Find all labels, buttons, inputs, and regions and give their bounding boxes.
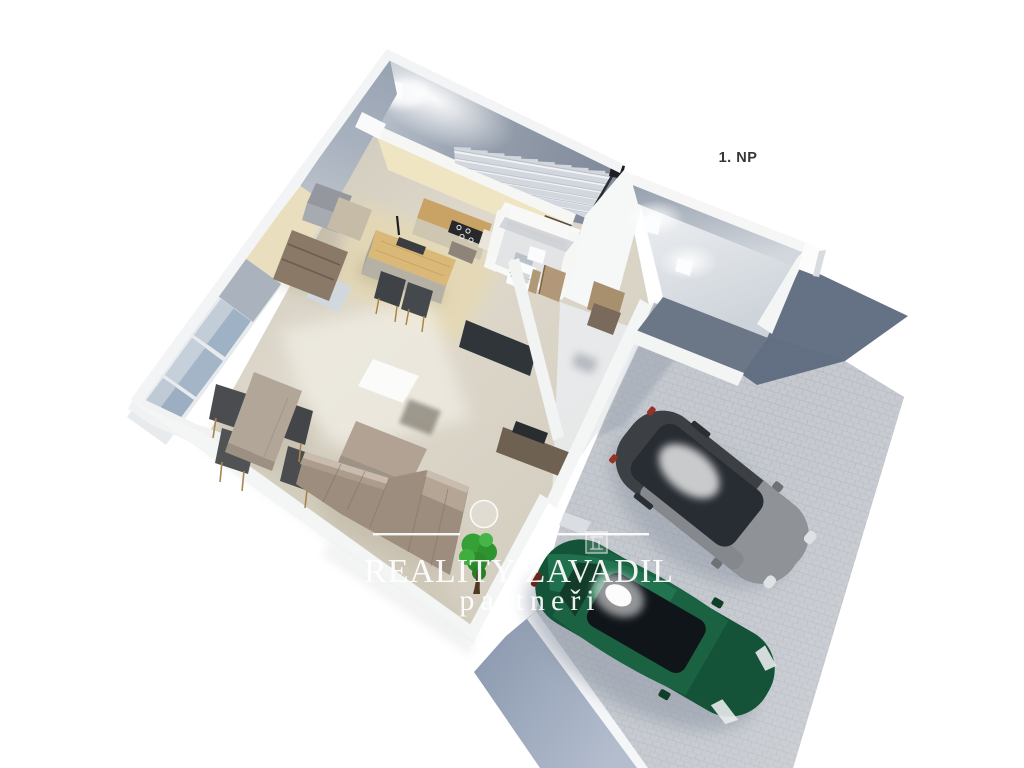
svg-text:partneři: partneři — [459, 584, 600, 617]
svg-text:1. NP: 1. NP — [719, 150, 758, 166]
